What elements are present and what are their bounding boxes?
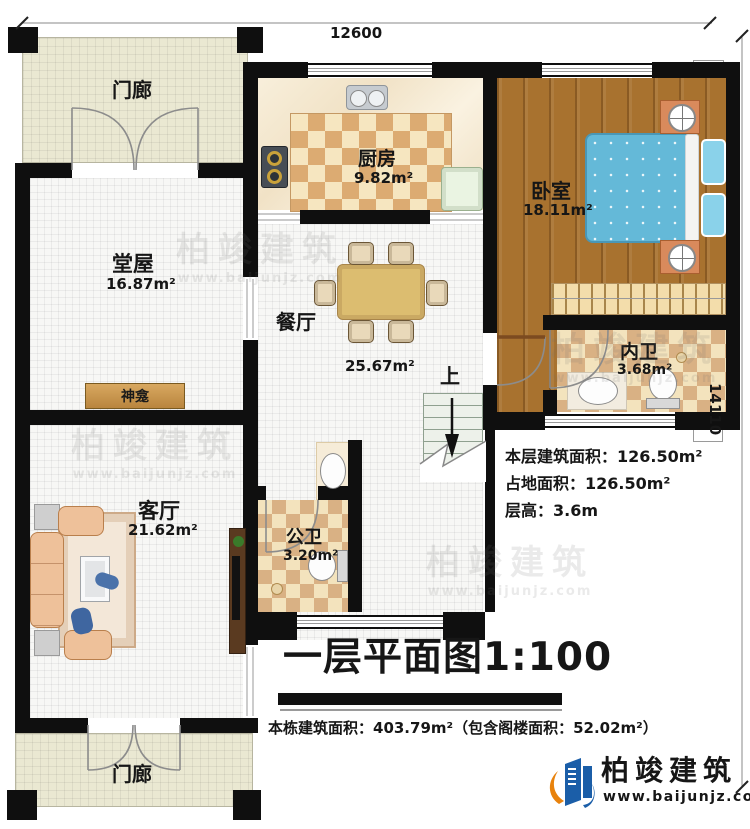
wall-segment <box>15 163 30 733</box>
window <box>545 414 675 428</box>
dimension-top-label: 12600 <box>330 26 382 42</box>
room-label-woshi: 卧室 <box>531 181 571 202</box>
dimension-right-value: 14110 <box>706 383 724 435</box>
fridge <box>441 167 483 211</box>
wall-segment <box>243 62 308 78</box>
wall-segment <box>485 430 495 612</box>
side-table <box>34 504 60 530</box>
area-label-canting: 25.67m² <box>345 359 415 375</box>
room-tangwu-floor <box>30 178 243 410</box>
dining-table <box>337 264 425 320</box>
room-label-neiwei: 内卫 <box>620 343 658 363</box>
wall-segment <box>15 718 88 733</box>
brand-logo-icon <box>545 754 597 810</box>
area-label-neiwei: 3.68m² <box>617 363 672 378</box>
floor-plan-title: 一层平面图1:100 <box>283 638 612 679</box>
area-label-gongwei: 3.20m² <box>283 549 338 564</box>
room-label-keting: 客厅 <box>138 500 180 522</box>
dining-chair <box>348 320 374 343</box>
stats-footprint-area: 占地面积：126.50m² <box>505 470 702 497</box>
room-label-chufang: 厨房 <box>358 150 396 170</box>
dining-chair <box>388 242 414 265</box>
kitchen-sink <box>346 85 388 110</box>
area-label-tangwu: 16.87m² <box>106 277 176 293</box>
wall-segment <box>348 440 362 612</box>
column <box>233 790 261 820</box>
title-underline-bar <box>278 693 562 705</box>
wall-segment <box>543 315 726 330</box>
room-label-canting: 餐厅 <box>276 312 316 333</box>
wall-segment <box>543 390 557 414</box>
shrine: 神龛 <box>85 383 185 409</box>
armchair <box>64 630 112 660</box>
dimension-right-label: 14110 <box>706 383 722 435</box>
column <box>7 790 37 820</box>
wall-segment <box>255 486 266 500</box>
window <box>542 63 652 77</box>
dining-chair <box>348 242 374 265</box>
window <box>297 615 443 629</box>
wall-segment <box>243 62 258 277</box>
floor-drain <box>271 583 283 595</box>
stats-block: 本层建筑面积：126.50m² 占地面积：126.50m² 层高：3.6m <box>505 443 702 525</box>
wall-segment <box>30 410 243 425</box>
column <box>8 27 38 53</box>
wall-segment <box>483 385 497 430</box>
total-area-note: 本栋建筑面积：403.79m²（包含阁楼面积：52.02m²） <box>268 721 658 737</box>
shrine-label: 神龛 <box>121 389 149 405</box>
brand-logo-text: 柏竣建筑 <box>601 756 737 785</box>
tv <box>232 556 240 620</box>
area-label-woshi: 18.11m² <box>523 203 593 219</box>
room-label-porch-top: 门廊 <box>112 80 152 101</box>
armchair <box>58 506 104 536</box>
area-label-keting: 21.62m² <box>128 523 198 539</box>
nightstand-lamp <box>668 244 696 272</box>
room-label-gongwei: 公卫 <box>286 529 322 548</box>
title-underline-thin <box>280 709 562 711</box>
room-label-tangwu: 堂屋 <box>112 253 154 275</box>
stats-floor-area: 本层建筑面积：126.50m² <box>505 443 702 470</box>
area-label-chufang: 9.82m² <box>354 171 413 187</box>
stove <box>261 146 288 188</box>
brand-website: www.baijunjz.com <box>603 790 750 805</box>
toilet-tank <box>646 398 680 409</box>
stats-storey-height: 层高：3.6m <box>505 497 702 524</box>
column <box>237 27 263 53</box>
floor-plan-canvas: 神龛 <box>0 0 750 829</box>
staircase <box>423 393 483 481</box>
side-table <box>34 630 60 656</box>
wall-segment <box>483 62 497 333</box>
stairs-up-label: 上 <box>440 366 460 387</box>
room-label-porch-bottom: 门廊 <box>112 764 152 785</box>
wall-segment <box>243 718 258 733</box>
dining-chair <box>426 280 448 306</box>
toilet-tank <box>337 550 348 582</box>
washbasin <box>320 453 346 489</box>
wall-segment <box>726 62 740 430</box>
bed-pillow <box>701 193 726 237</box>
washbasin <box>578 377 618 405</box>
wall-segment <box>497 412 545 430</box>
plant <box>233 536 244 547</box>
dining-chair <box>388 320 414 343</box>
nightstand-lamp <box>668 104 696 132</box>
bed <box>585 133 697 243</box>
window <box>308 63 432 77</box>
bed-sheet <box>685 134 699 242</box>
dining-chair <box>314 280 336 306</box>
sofa <box>30 532 64 628</box>
wardrobe <box>551 283 726 315</box>
wall-segment <box>300 210 430 224</box>
floor-drain <box>676 352 687 363</box>
bed-pillow <box>701 139 726 185</box>
brand-logo: 柏竣建筑 www.baijunjz.com <box>545 752 745 816</box>
